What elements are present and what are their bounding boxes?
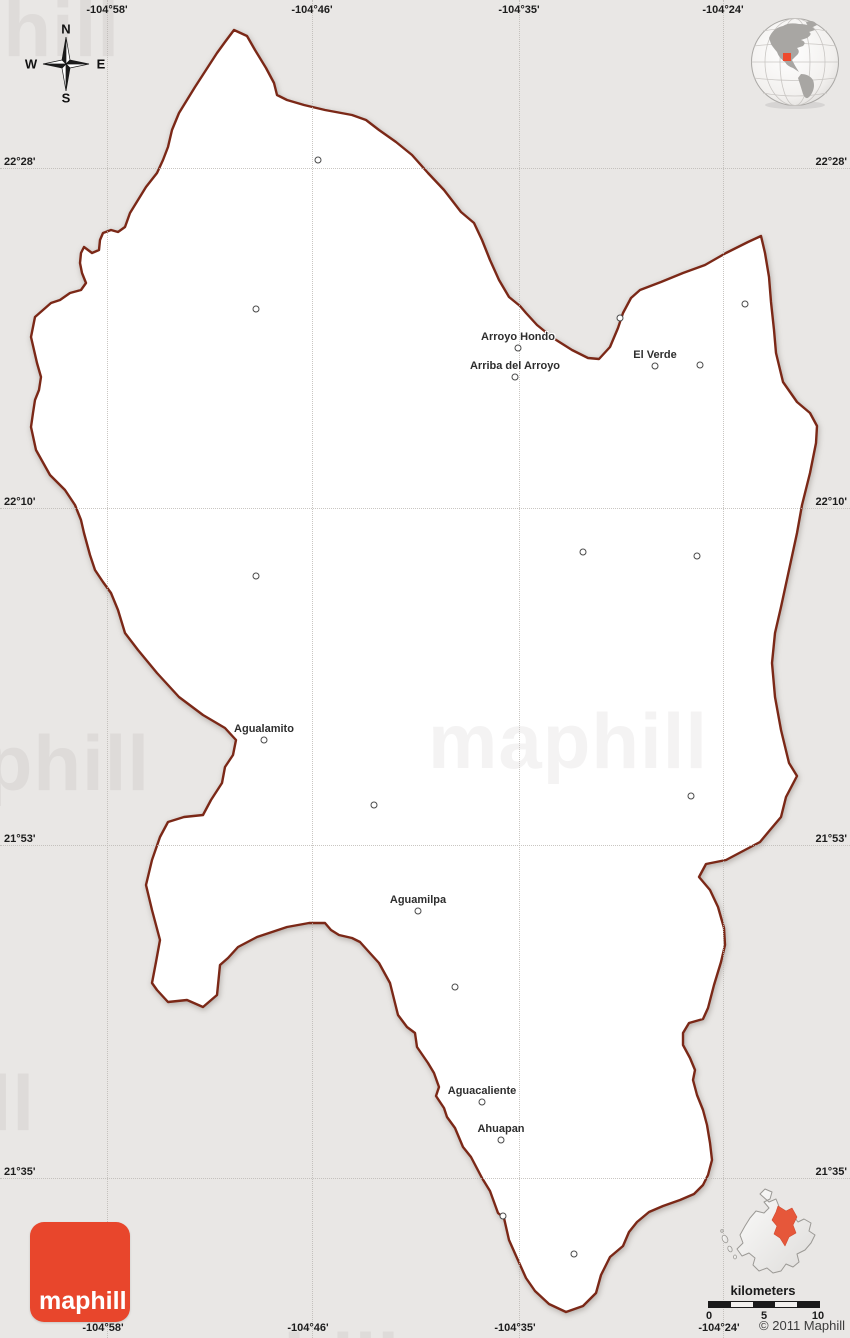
scale-bar-title: kilometers [708,1283,818,1298]
compass-point-n-light [66,37,70,64]
gridline-parallel [0,845,850,846]
settlement-dot [253,306,260,313]
town-dot [498,1137,505,1144]
scale-bar-segment [753,1302,775,1307]
latitude-label-left: 21°35' [4,1166,36,1178]
latitude-label-right: 21°53' [816,833,848,845]
town-dot [415,908,422,915]
longitude-label-bottom: -104°24' [698,1322,739,1334]
latitude-label-right: 22°28' [816,156,848,168]
settlement-dot [371,802,378,809]
town-dot [652,363,659,370]
longitude-label-bottom: -104°35' [494,1322,535,1334]
gridline-parallel [0,1178,850,1179]
copyright-text: © 2011 Maphill [759,1318,845,1333]
town-dot [479,1099,486,1106]
settlement-dot [571,1251,578,1258]
latitude-label-left: 22°10' [4,496,36,508]
town-dot [515,345,522,352]
compass-point-w-dark [43,64,66,68]
settlement-dot [617,315,624,322]
scale-bar-segment [797,1302,819,1307]
town-label: Aguacaliente [448,1085,516,1097]
town-label: Arroyo Hondo [481,331,555,343]
town-dot [512,374,519,381]
gridline-meridian [107,0,108,1338]
compass-label-south: S [62,91,71,105]
settlement-dot [500,1213,507,1220]
latitude-label-left: 22°28' [4,156,36,168]
compass-label-east: E [97,57,106,72]
gridline-parallel [0,168,850,169]
compass-point-e-dark [66,60,89,64]
longitude-label-top: -104°46' [291,4,332,16]
latitude-label-right: 21°35' [816,1166,848,1178]
town-label: Arriba del Arroyo [470,360,560,372]
state-locator-map [698,1186,850,1290]
globe-locator [749,16,841,110]
locator-islands [721,1230,737,1259]
town-label: El Verde [633,349,676,361]
longitude-label-top: -104°58' [86,4,127,16]
longitude-label-bottom: -104°46' [287,1322,328,1334]
longitude-label-bottom: -104°58' [82,1322,123,1334]
compass-point-s-light [62,64,66,91]
gridline-meridian [723,0,724,1338]
town-label: Ahuapan [477,1123,524,1135]
settlement-dot [694,553,701,560]
settlement-dot [688,793,695,800]
longitude-label-top: -104°24' [702,4,743,16]
scale-bar-segment [731,1302,753,1307]
compass-point-s-dark [66,64,70,91]
longitude-label-top: -104°35' [498,4,539,16]
latitude-label-left: 21°53' [4,833,36,845]
scale-bar-segment [775,1302,797,1307]
gridline-parallel [0,508,850,509]
municipality-boundary [31,30,817,1312]
latitude-label-right: 22°10' [816,496,848,508]
settlement-dot [452,984,459,991]
gridline-meridian [519,0,520,1338]
town-label: Aguamilpa [390,894,446,906]
compass-rose: N S W E [20,22,112,104]
map-canvas: maphill maphill maphill maphill maphill … [0,0,850,1338]
settlement-dot [315,157,322,164]
maphill-logo: maphill [30,1222,130,1322]
settlement-dot [253,573,260,580]
scale-bar [708,1301,820,1308]
compass-label-west: W [25,57,38,72]
scale-bar-number: 0 [706,1310,712,1322]
settlement-dot [742,301,749,308]
compass-point-n-dark [62,37,66,64]
settlement-dot [580,549,587,556]
compass-point-w-light [43,60,66,64]
gridline-meridian [312,0,313,1338]
town-label: Agualamito [234,723,294,735]
town-dot [261,737,268,744]
scale-bar-segment [709,1302,731,1307]
settlement-dot [697,362,704,369]
maphill-logo-text: maphill [39,1287,127,1316]
globe-region-marker [783,53,791,61]
compass-label-north: N [61,22,70,37]
